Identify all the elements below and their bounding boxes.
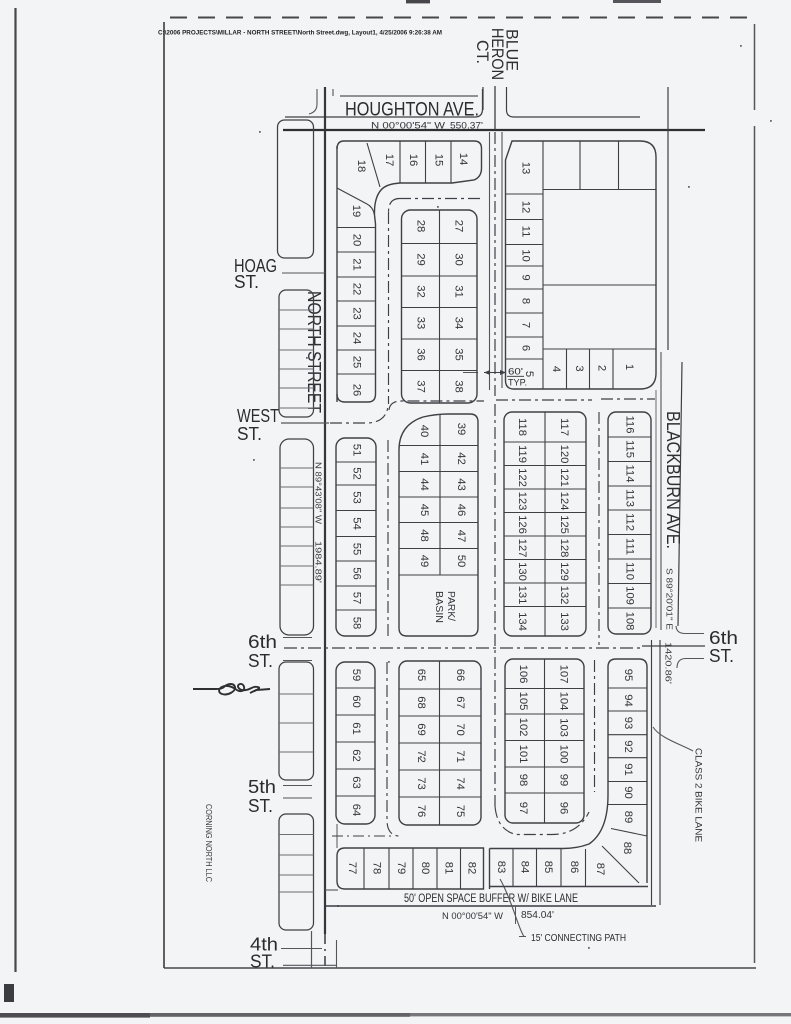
svg-text:100: 100	[558, 745, 570, 764]
svg-text:86: 86	[568, 861, 580, 874]
svg-text:15: 15	[433, 154, 445, 167]
svg-text:44: 44	[418, 478, 430, 491]
svg-text:C:\2006 PROJECTS\MILLAR - NORT: C:\2006 PROJECTS\MILLAR - NORTH STREET\N…	[158, 30, 442, 37]
svg-text:99: 99	[558, 774, 570, 787]
svg-text:7: 7	[520, 322, 532, 328]
svg-text:127: 127	[516, 539, 528, 558]
svg-text:50' OPEN SPACE BUFFER W/: 50' OPEN SPACE BUFFER W/ BIKE LANE	[404, 893, 578, 905]
svg-text:87: 87	[594, 863, 606, 876]
svg-text:30: 30	[453, 253, 465, 266]
svg-text:28: 28	[415, 220, 427, 233]
svg-text:111: 111	[624, 538, 636, 555]
svg-text:65: 65	[415, 669, 427, 682]
svg-text:45: 45	[418, 504, 430, 517]
svg-text:69: 69	[415, 723, 427, 736]
svg-text:81: 81	[443, 862, 455, 875]
svg-text:ST.: ST.	[250, 952, 275, 972]
svg-text:CT.: CT.	[473, 40, 491, 64]
svg-text:128: 128	[558, 539, 570, 558]
svg-text:N 89°43'08" W: N 89°43'08" W	[314, 462, 324, 525]
svg-text:26: 26	[351, 384, 363, 397]
svg-text:122: 122	[516, 468, 528, 487]
svg-text:51: 51	[351, 444, 363, 457]
svg-text:6th: 6th	[248, 632, 277, 652]
svg-text:57: 57	[351, 592, 363, 605]
svg-text:93: 93	[622, 717, 634, 730]
svg-text:95: 95	[622, 669, 634, 682]
svg-text:118: 118	[516, 418, 528, 436]
svg-text:105: 105	[517, 692, 529, 711]
svg-text:129: 129	[558, 562, 570, 581]
svg-text:78: 78	[371, 862, 383, 875]
svg-text:85: 85	[542, 861, 554, 874]
svg-text:124: 124	[558, 492, 570, 511]
svg-text:67: 67	[454, 696, 466, 709]
svg-text:43: 43	[455, 478, 467, 491]
svg-text:96: 96	[558, 802, 570, 815]
svg-text:62: 62	[350, 749, 362, 762]
svg-text:79: 79	[395, 862, 407, 875]
svg-text:33: 33	[415, 317, 427, 330]
svg-text:HOUGHTON AVE.: HOUGHTON AVE.	[345, 100, 479, 121]
svg-text:4: 4	[550, 366, 562, 372]
svg-text:TYP.: TYP.	[508, 378, 527, 389]
svg-text:91: 91	[622, 763, 634, 776]
svg-text:9: 9	[520, 274, 532, 280]
svg-text:16: 16	[407, 154, 419, 167]
svg-text:126: 126	[516, 515, 528, 534]
svg-text:48: 48	[418, 529, 430, 542]
svg-text:107: 107	[558, 665, 570, 684]
svg-text:11: 11	[520, 226, 532, 238]
svg-text:49: 49	[418, 555, 430, 568]
svg-text:ST.: ST.	[237, 424, 262, 444]
svg-text:106: 106	[517, 665, 529, 684]
svg-text:14: 14	[457, 153, 469, 166]
svg-text:104: 104	[558, 692, 570, 711]
svg-text:41: 41	[418, 453, 430, 466]
svg-text:54: 54	[351, 517, 363, 530]
svg-text:1984.89': 1984.89'	[314, 541, 324, 583]
svg-text:N 00°00'54" W: N 00°00'54" W	[371, 121, 446, 131]
svg-text:117: 117	[558, 418, 570, 436]
svg-text:10: 10	[520, 249, 532, 262]
svg-text:CORNING NORTH LLC: CORNING NORTH LLC	[204, 804, 214, 882]
svg-text:72: 72	[415, 750, 427, 763]
svg-text:52: 52	[351, 467, 363, 480]
svg-text:108: 108	[624, 612, 636, 631]
svg-text:38: 38	[453, 380, 465, 393]
svg-text:103: 103	[558, 718, 570, 737]
svg-text:550.37': 550.37'	[450, 120, 483, 130]
svg-text:61: 61	[350, 722, 362, 735]
svg-text:123: 123	[516, 492, 528, 511]
svg-text:73: 73	[415, 777, 427, 790]
svg-text:36: 36	[415, 348, 427, 361]
svg-text:88: 88	[621, 842, 633, 855]
svg-text:PARK/: PARK/	[445, 591, 457, 621]
svg-text:90: 90	[622, 786, 634, 799]
svg-text:82: 82	[466, 862, 478, 875]
svg-text:37: 37	[415, 380, 427, 393]
svg-text:ST.: ST.	[248, 796, 273, 816]
svg-text:24: 24	[351, 332, 363, 345]
svg-text:113: 113	[624, 489, 636, 507]
svg-text:20: 20	[351, 234, 363, 247]
svg-text:70: 70	[454, 723, 466, 736]
svg-text:31: 31	[453, 285, 465, 298]
svg-text:83: 83	[495, 861, 507, 874]
svg-text:77: 77	[346, 862, 358, 875]
svg-text:121: 121	[558, 468, 570, 487]
svg-text:131: 131	[516, 586, 528, 605]
svg-text:92: 92	[622, 740, 634, 753]
svg-text:29: 29	[415, 253, 427, 266]
svg-text:13: 13	[520, 162, 532, 175]
svg-text:BLACKBURN AVE.: BLACKBURN AVE.	[663, 411, 683, 549]
svg-text:115: 115	[624, 440, 636, 458]
svg-text:89: 89	[622, 811, 634, 824]
svg-text:40: 40	[418, 425, 430, 438]
svg-text:854.04': 854.04'	[521, 910, 554, 921]
svg-text:8: 8	[520, 298, 532, 304]
svg-text:15' CONNECTING PATH: 15' CONNECTING PATH	[531, 933, 626, 944]
svg-text:76: 76	[415, 805, 427, 818]
svg-text:1: 1	[623, 364, 635, 370]
svg-text:110: 110	[624, 562, 636, 580]
svg-text:12: 12	[520, 201, 532, 214]
svg-text:17: 17	[383, 154, 395, 167]
svg-text:114: 114	[624, 464, 636, 482]
svg-text:19: 19	[350, 205, 362, 218]
svg-text:21: 21	[351, 258, 363, 271]
svg-text:32: 32	[415, 285, 427, 298]
svg-text:35: 35	[453, 348, 465, 361]
svg-text:42: 42	[455, 452, 467, 465]
svg-text:64: 64	[350, 804, 362, 817]
svg-text:WEST: WEST	[237, 406, 279, 426]
svg-text:47: 47	[455, 530, 467, 543]
svg-text:18: 18	[355, 160, 367, 173]
svg-text:94: 94	[622, 694, 634, 707]
svg-text:50: 50	[455, 555, 467, 568]
svg-text:3: 3	[573, 365, 585, 371]
svg-text:39: 39	[455, 423, 467, 436]
svg-text:133: 133	[558, 612, 570, 631]
svg-text:58: 58	[351, 617, 363, 630]
svg-text:25: 25	[351, 356, 363, 369]
svg-text:34: 34	[453, 317, 465, 330]
svg-text:130: 130	[516, 562, 528, 581]
svg-text:97: 97	[517, 802, 529, 815]
svg-text:NORTH STREET: NORTH STREET	[304, 291, 325, 413]
svg-text:27: 27	[453, 220, 465, 233]
svg-text:80: 80	[419, 862, 431, 875]
svg-text:132: 132	[558, 586, 570, 605]
svg-text:120: 120	[558, 445, 570, 464]
svg-text:1420.86': 1420.86'	[664, 642, 674, 684]
svg-text:71: 71	[454, 750, 466, 763]
svg-text:74: 74	[454, 777, 466, 790]
svg-text:6: 6	[520, 345, 532, 351]
svg-text:125: 125	[558, 515, 570, 534]
svg-text:5: 5	[523, 371, 535, 377]
svg-text:5th: 5th	[248, 777, 276, 797]
svg-text:59: 59	[350, 669, 362, 682]
svg-text:112: 112	[624, 513, 636, 531]
svg-text:119: 119	[516, 445, 528, 463]
svg-text:101: 101	[517, 745, 529, 764]
svg-text:98: 98	[517, 774, 529, 787]
svg-text:22: 22	[351, 283, 363, 296]
svg-text:102: 102	[517, 718, 529, 737]
svg-text:109: 109	[624, 586, 636, 605]
svg-text:BASIN: BASIN	[433, 591, 445, 623]
svg-text:60: 60	[350, 695, 362, 708]
svg-text:ST.: ST.	[709, 646, 734, 666]
svg-text:63: 63	[350, 776, 362, 789]
svg-text:ST.: ST.	[234, 272, 259, 292]
svg-text:68: 68	[415, 696, 427, 709]
svg-text:66: 66	[454, 669, 466, 682]
svg-text:2: 2	[596, 365, 608, 371]
svg-text:S 89°20'01" E: S 89°20'01" E	[665, 568, 675, 630]
svg-text:ST.: ST.	[248, 651, 273, 671]
svg-text:55: 55	[351, 543, 363, 556]
svg-text:53: 53	[351, 491, 363, 504]
svg-text:CLASS 2 BIKE LANE: CLASS 2 BIKE LANE	[693, 748, 704, 842]
svg-text:56: 56	[351, 567, 363, 580]
svg-text:N 00°00'54" W: N 00°00'54" W	[442, 911, 503, 922]
svg-text:23: 23	[351, 307, 363, 320]
svg-text:46: 46	[455, 504, 467, 517]
svg-text:84: 84	[519, 861, 531, 874]
svg-text:116: 116	[624, 415, 636, 433]
svg-text:75: 75	[454, 805, 466, 818]
svg-text:134: 134	[516, 612, 528, 631]
svg-text:6th: 6th	[709, 628, 738, 648]
